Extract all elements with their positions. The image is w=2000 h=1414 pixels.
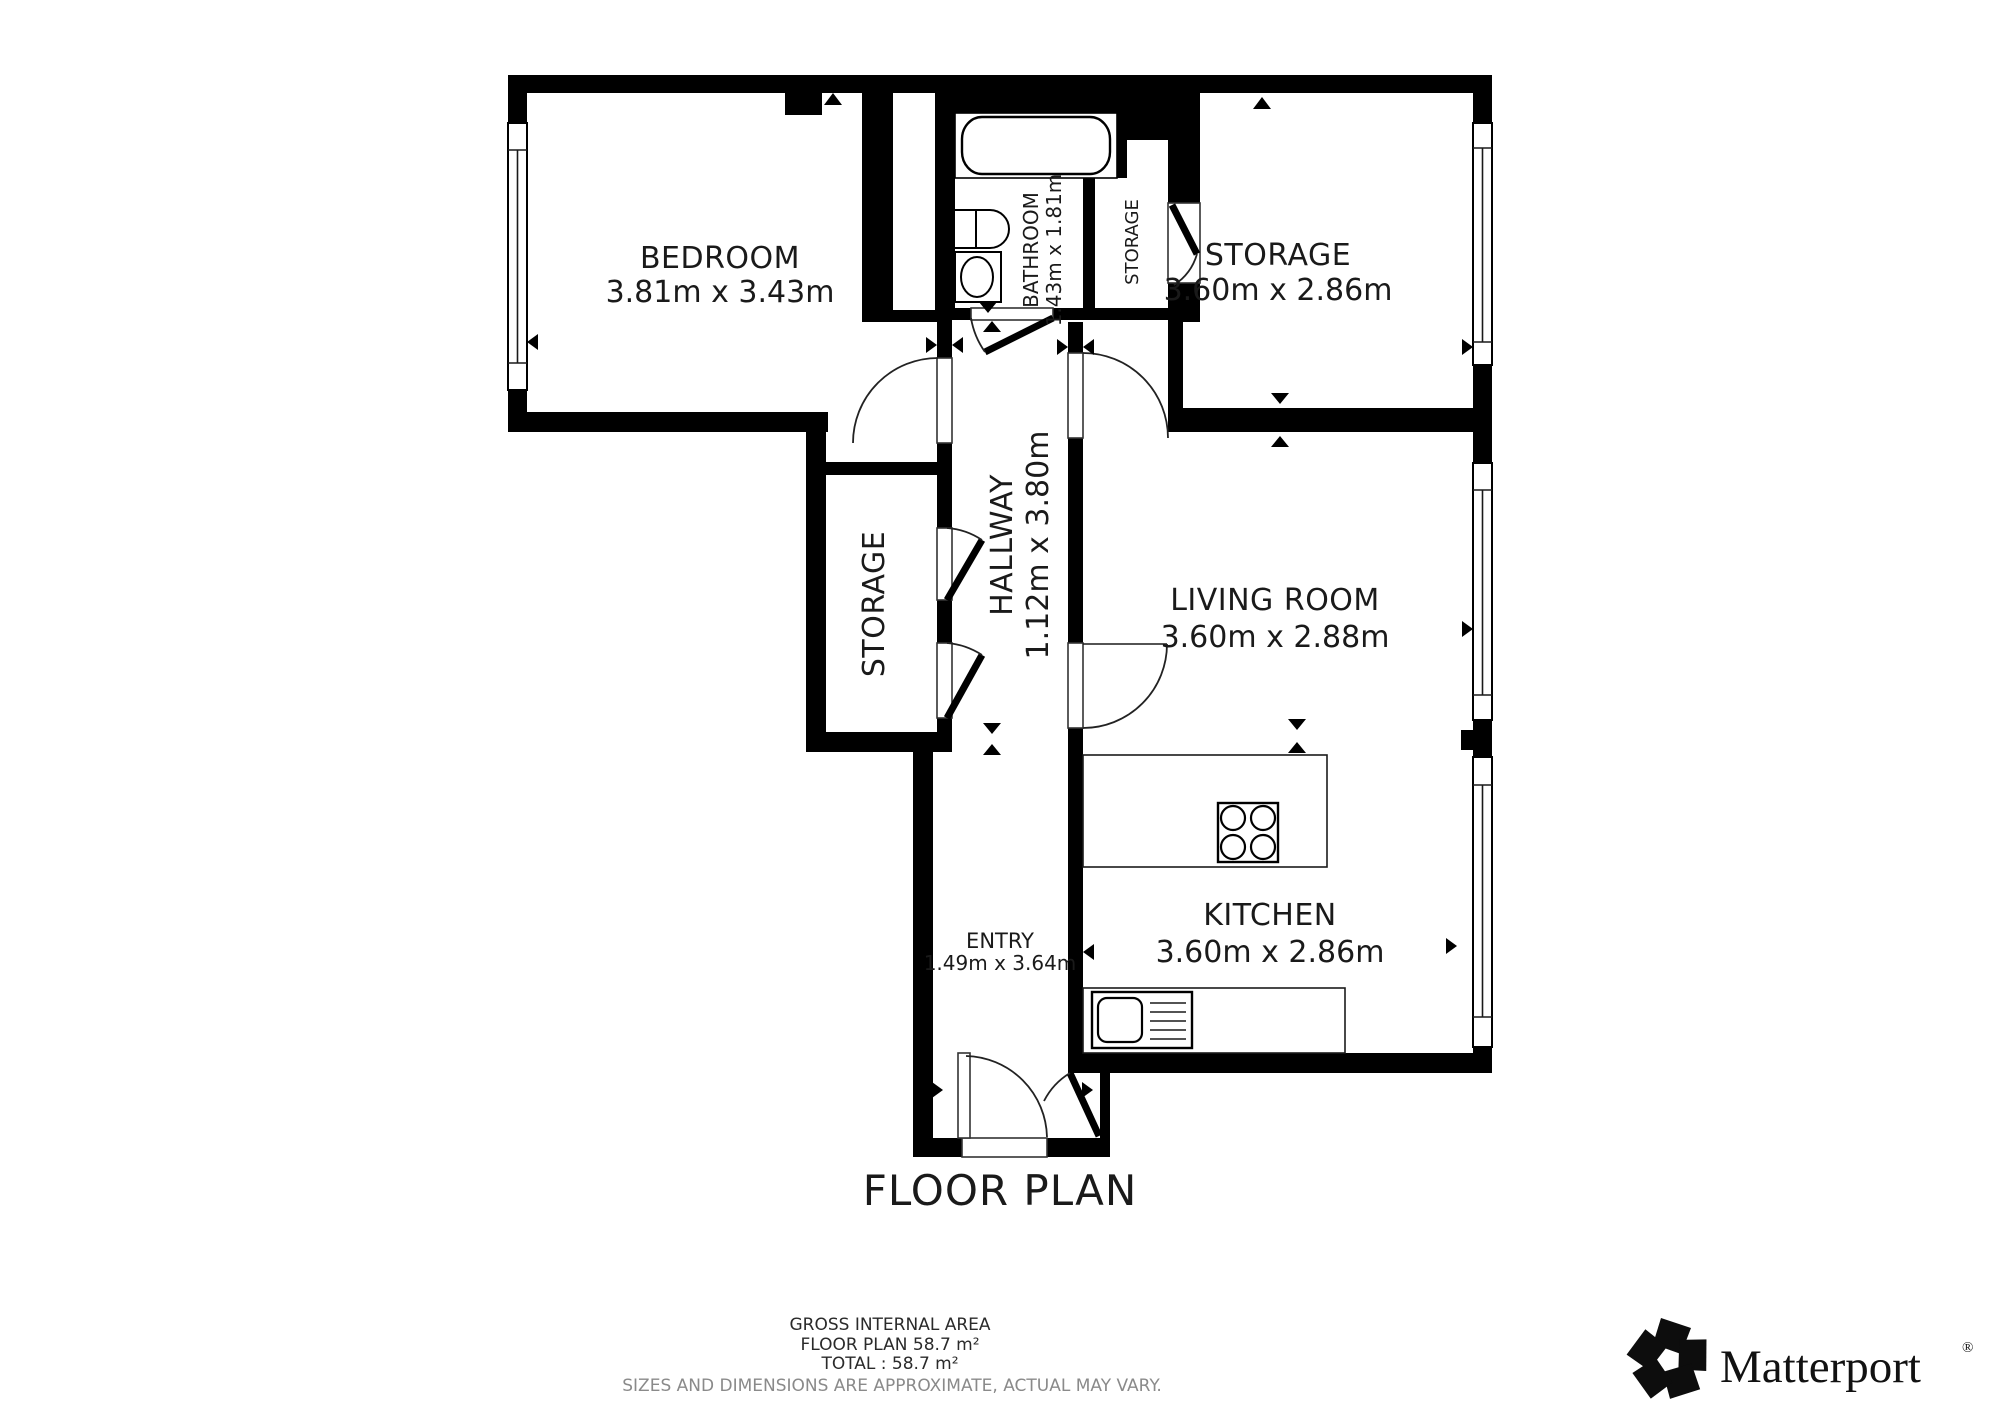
door-storage-1 (937, 528, 982, 600)
room-label-bathroom-dims: 1.43m x 1.81m (1042, 174, 1066, 327)
window-living-right (1473, 463, 1492, 720)
door-storage-2 (937, 643, 982, 718)
footer-total-area: TOTAL : 58.7 m² (820, 1354, 958, 1374)
room-label-bedroom-dims: 3.81m x 3.43m (606, 275, 835, 310)
room-label-hallway-name: HALLWAY (985, 474, 1020, 616)
window-kitchen-right (1473, 757, 1492, 1047)
kitchen-sink-icon (1092, 992, 1192, 1048)
room-label-storage-dims: 3.60m x 2.86m (1164, 273, 1393, 308)
room-label-living-name: LIVING ROOM (1170, 583, 1380, 618)
room-label-storage-name: STORAGE (1205, 238, 1351, 273)
room-label-bathroom-name: BATHROOM (1019, 192, 1043, 308)
brand-name: Matterport (1720, 1341, 1921, 1393)
room-label-entry-dims: 1.49m x 3.64m (924, 951, 1077, 975)
window-bedroom-left (508, 123, 527, 390)
room-label-hall-storage: STORAGE (857, 531, 892, 677)
floor-plan-page: BEDROOM 3.81m x 3.43m BATHROOM 1.43m x 1… (0, 0, 2000, 1414)
window-storage-right (1473, 123, 1492, 365)
cooktop-icon (1218, 803, 1278, 862)
sink-icon (955, 252, 1001, 302)
door-living-top (1068, 353, 1168, 438)
footer-disclaimer: SIZES AND DIMENSIONS ARE APPROXIMATE, AC… (622, 1376, 1161, 1396)
room-label-kitchen-dims: 3.60m x 2.86m (1156, 935, 1385, 970)
room-label-bedroom-name: BEDROOM (640, 241, 800, 276)
door-bathroom (971, 308, 1053, 352)
footer-floor-area: FLOOR PLAN 58.7 m² (800, 1335, 979, 1355)
bathtub-icon (955, 113, 1117, 178)
room-label-hallway-dims: 1.12m x 3.80m (1021, 431, 1056, 660)
door-entry (958, 1053, 1047, 1157)
room-label-kitchen-name: KITCHEN (1203, 898, 1337, 933)
room-label-living-dims: 3.60m x 2.88m (1161, 620, 1390, 655)
floor-plan: BEDROOM 3.81m x 3.43m BATHROOM 1.43m x 1… (0, 0, 2000, 1414)
brand-registered-mark: ® (1962, 1340, 1973, 1356)
footer-area-title: GROSS INTERNAL AREA (789, 1315, 990, 1335)
room-label-entry-name: ENTRY (966, 929, 1034, 953)
toilet-icon (954, 210, 1009, 248)
door-living-bottom (1068, 643, 1167, 728)
door-bedroom (853, 358, 952, 443)
matterport-logo-icon (1624, 1318, 1716, 1407)
page-title: FLOOR PLAN (863, 1166, 1138, 1215)
kitchen-counter-top (1083, 755, 1327, 867)
room-label-closet: STORAGE (1122, 199, 1143, 285)
door-entry-corner (1044, 1073, 1099, 1136)
